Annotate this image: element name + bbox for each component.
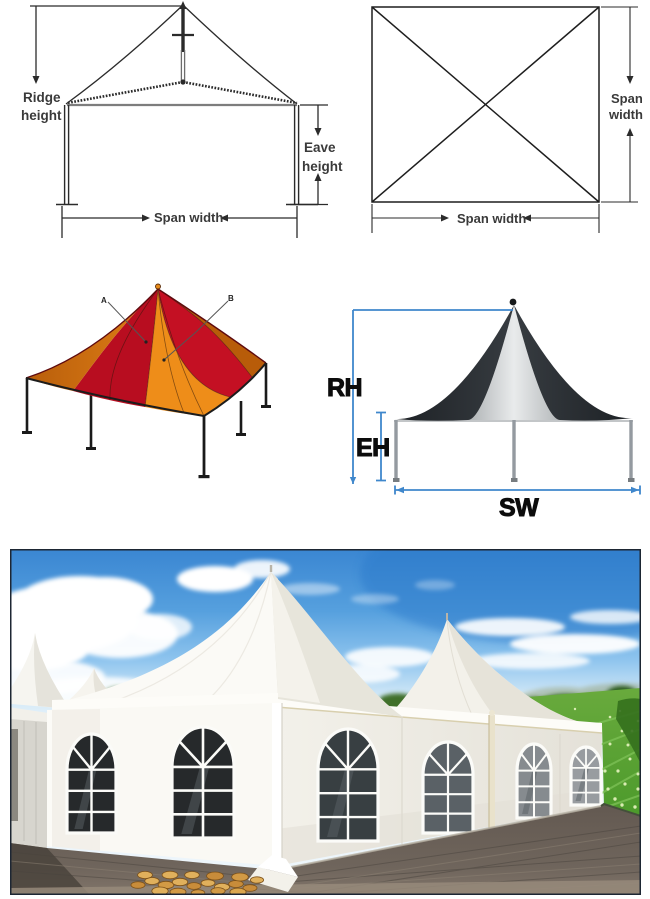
svg-text:RH: RH [327,374,362,402]
svg-text:A: A [101,296,107,305]
svg-text:Eave: Eave [304,140,336,155]
svg-text:SW: SW [499,494,539,522]
svg-text:height: height [21,108,62,123]
svg-text:Span width: Span width [154,210,223,225]
svg-text:height: height [302,159,343,174]
svg-text:width: width [608,107,643,122]
svg-text:B: B [228,294,234,303]
svg-text:EH: EH [356,434,390,462]
svg-text:Span width: Span width [457,211,526,226]
svg-text:Span: Span [611,91,643,106]
svg-text:Ridge: Ridge [23,90,61,105]
